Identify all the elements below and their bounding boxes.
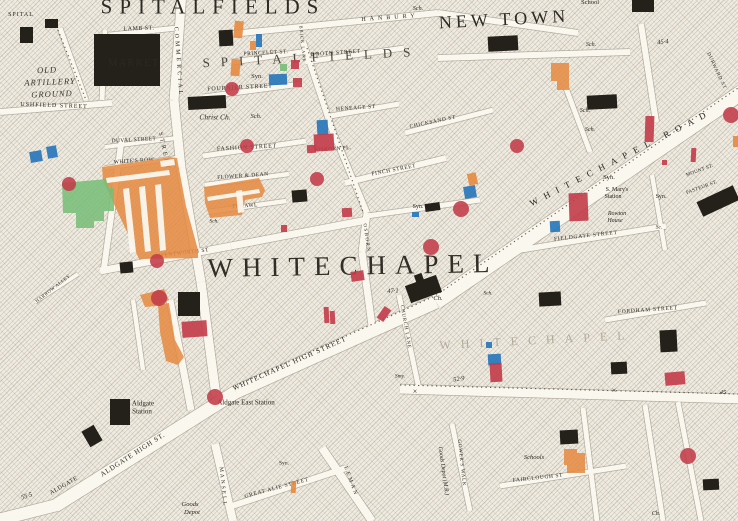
overlay-marker-red[interactable]	[330, 311, 336, 324]
overlay-marker-red[interactable]	[645, 116, 655, 142]
overlay-marker-red[interactable]	[350, 270, 364, 282]
overlay-area-orange[interactable]	[551, 63, 569, 90]
overlay-marker-circle-red[interactable]	[151, 290, 167, 306]
overlay-marker-red[interactable]	[291, 60, 299, 69]
overlay-marker-green[interactable]	[280, 64, 287, 71]
overlay-marker-blue[interactable]	[550, 221, 561, 233]
overlay-marker-circle-red[interactable]	[62, 177, 76, 191]
overlay-marker-circle-red[interactable]	[423, 239, 439, 255]
overlay-marker-red[interactable]	[314, 133, 335, 151]
overlay-area-orange[interactable]	[158, 303, 184, 365]
overlay-marker-circle-red[interactable]	[240, 139, 254, 153]
overlay-marker-circle-red[interactable]	[680, 448, 696, 464]
overlay-marker-blue[interactable]	[46, 145, 58, 159]
overlay-marker-circle-red[interactable]	[207, 389, 223, 405]
overlay-marker-red[interactable]	[377, 306, 392, 322]
overlay-marker-red[interactable]	[324, 307, 330, 323]
overlay-marker-red[interactable]	[662, 160, 667, 165]
overlay-marker-orange[interactable]	[291, 481, 297, 493]
overlay-marker-blue[interactable]	[317, 120, 329, 136]
overlay-marker-red[interactable]	[342, 208, 352, 218]
overlay-marker-red[interactable]	[181, 320, 207, 338]
overlay-marker-circle-red[interactable]	[723, 107, 738, 123]
overlay-marker-blue[interactable]	[269, 74, 287, 86]
overlay-marker-blue[interactable]	[412, 212, 419, 217]
overlay-marker-red[interactable]	[281, 225, 287, 232]
overlay-marker-red[interactable]	[691, 148, 697, 162]
overlay-marker-red[interactable]	[490, 363, 503, 383]
overlay-marker-blue[interactable]	[29, 150, 43, 163]
overlay-marker-orange[interactable]	[467, 172, 478, 186]
overlay-marker-circle-red[interactable]	[510, 139, 524, 153]
overlay-marker-orange[interactable]	[733, 136, 738, 147]
overlay-marker-blue[interactable]	[256, 34, 262, 47]
overlay-marker-circle-red[interactable]	[453, 201, 469, 217]
overlay-marker-red[interactable]	[569, 193, 589, 222]
map-canvas[interactable]: SPITALFIELDSMILE ENDNEW TOWNSPITALFIELDS…	[0, 0, 738, 521]
overlay-marker-circle-red[interactable]	[225, 82, 239, 96]
overlay-marker-layer	[0, 0, 738, 521]
overlay-marker-blue[interactable]	[463, 185, 477, 199]
overlay-area-orange[interactable]	[564, 449, 585, 473]
overlay-marker-orange[interactable]	[233, 21, 244, 39]
overlay-marker-red[interactable]	[664, 371, 685, 386]
overlay-marker-red[interactable]	[307, 145, 316, 153]
overlay-marker-blue[interactable]	[486, 342, 492, 348]
overlay-marker-orange[interactable]	[230, 59, 240, 77]
overlay-marker-circle-red[interactable]	[150, 254, 164, 268]
overlay-marker-circle-red[interactable]	[310, 172, 324, 186]
overlay-marker-red[interactable]	[293, 78, 302, 87]
overlay-marker-orange[interactable]	[250, 41, 256, 50]
